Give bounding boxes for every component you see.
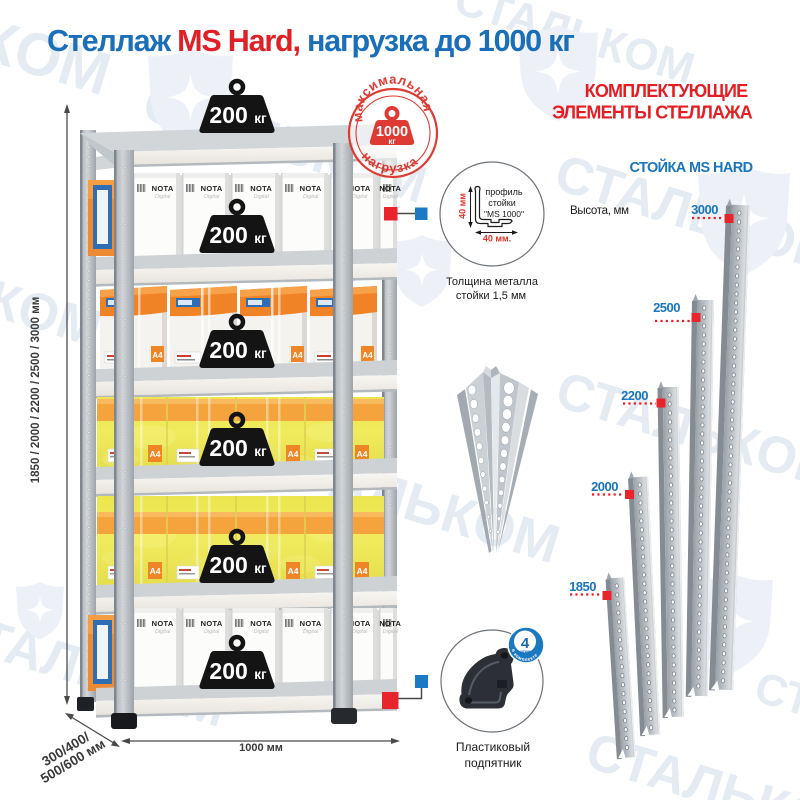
svg-text:3000: 3000 [691,202,718,217]
svg-text:СТАЛЬКОМ: СТАЛЬКОМ [579,722,800,800]
svg-text:A4: A4 [292,351,303,360]
svg-text:NOTA: NOTA [250,619,272,628]
svg-text:Digital: Digital [155,629,171,635]
svg-text:A4: A4 [357,449,368,459]
svg-text:Digital: Digital [204,629,220,635]
svg-text:подпятник: подпятник [465,756,523,770]
svg-text:Digital: Digital [254,629,270,635]
svg-text:NOTA: NOTA [250,184,272,193]
svg-text:Digital: Digital [155,194,171,200]
svg-text:Digital: Digital [303,629,319,635]
svg-text:NOTA: NOTA [152,619,174,628]
svg-text:стойки: стойки [488,198,516,208]
svg-text:КОМПЛЕКТУЮЩИЕ: КОМПЛЕКТУЮЩИЕ [585,81,748,101]
svg-text:A4: A4 [362,351,373,360]
svg-text:NOTA: NOTA [201,619,223,628]
svg-text:Высота, мм: Высота, мм [570,205,629,217]
svg-text:1000 мм: 1000 мм [239,742,283,754]
svg-text:СТАЛЬКОМ: СТАЛЬКОМ [749,663,800,782]
svg-text:A4: A4 [288,449,299,459]
svg-text:A4: A4 [357,566,368,576]
svg-text:Пластиковый: Пластиковый [456,740,530,754]
svg-text:штуки: штуки [520,650,530,654]
svg-text:NOTA: NOTA [201,184,223,193]
svg-text:40 мм.: 40 мм. [483,234,511,244]
svg-text:Толщина металла: Толщина металла [446,276,539,288]
svg-text:2200: 2200 [621,388,648,403]
svg-text:1850: 1850 [569,579,596,594]
svg-text:Digital: Digital [352,194,368,200]
svg-text:профиль: профиль [485,187,523,197]
svg-text:Digital: Digital [352,629,368,635]
svg-text:NOTA: NOTA [300,619,322,628]
svg-text:Digital: Digital [303,194,319,200]
svg-text:Digital: Digital [254,194,270,200]
svg-text:NOTA: NOTA [379,619,401,628]
svg-text:СТОЙКА MS HARD: СТОЙКА MS HARD [630,158,753,176]
svg-text:A4: A4 [150,449,161,459]
svg-text:1850 / 2000 / 2200 / 2500 / 30: 1850 / 2000 / 2200 / 2500 / 3000 мм [30,297,42,483]
svg-text:A4: A4 [152,351,163,360]
svg-text:кг: кг [388,137,396,146]
svg-text:40 мм: 40 мм [458,193,468,219]
svg-text:ЭЛЕМЕНТЫ СТЕЛЛАЖА: ЭЛЕМЕНТЫ СТЕЛЛАЖА [552,103,753,123]
svg-text:Digital: Digital [383,194,399,200]
svg-text:2500: 2500 [653,300,680,315]
svg-text:Стеллаж MS Hard, нагрузка до 1: Стеллаж MS Hard, нагрузка до 1000 кг [47,24,574,58]
svg-text:стойки 1,5 мм: стойки 1,5 мм [456,290,526,302]
svg-text:NOTA: NOTA [152,184,174,193]
svg-text:NOTA: NOTA [379,184,401,193]
svg-text:A4: A4 [288,566,299,576]
svg-text:NOTA: NOTA [300,184,322,193]
svg-text:A4: A4 [150,566,161,576]
svg-text:Digital: Digital [204,194,220,200]
svg-text:2000: 2000 [591,479,618,494]
svg-text:"MS 1000": "MS 1000" [484,209,524,219]
svg-text:Digital: Digital [383,629,399,635]
